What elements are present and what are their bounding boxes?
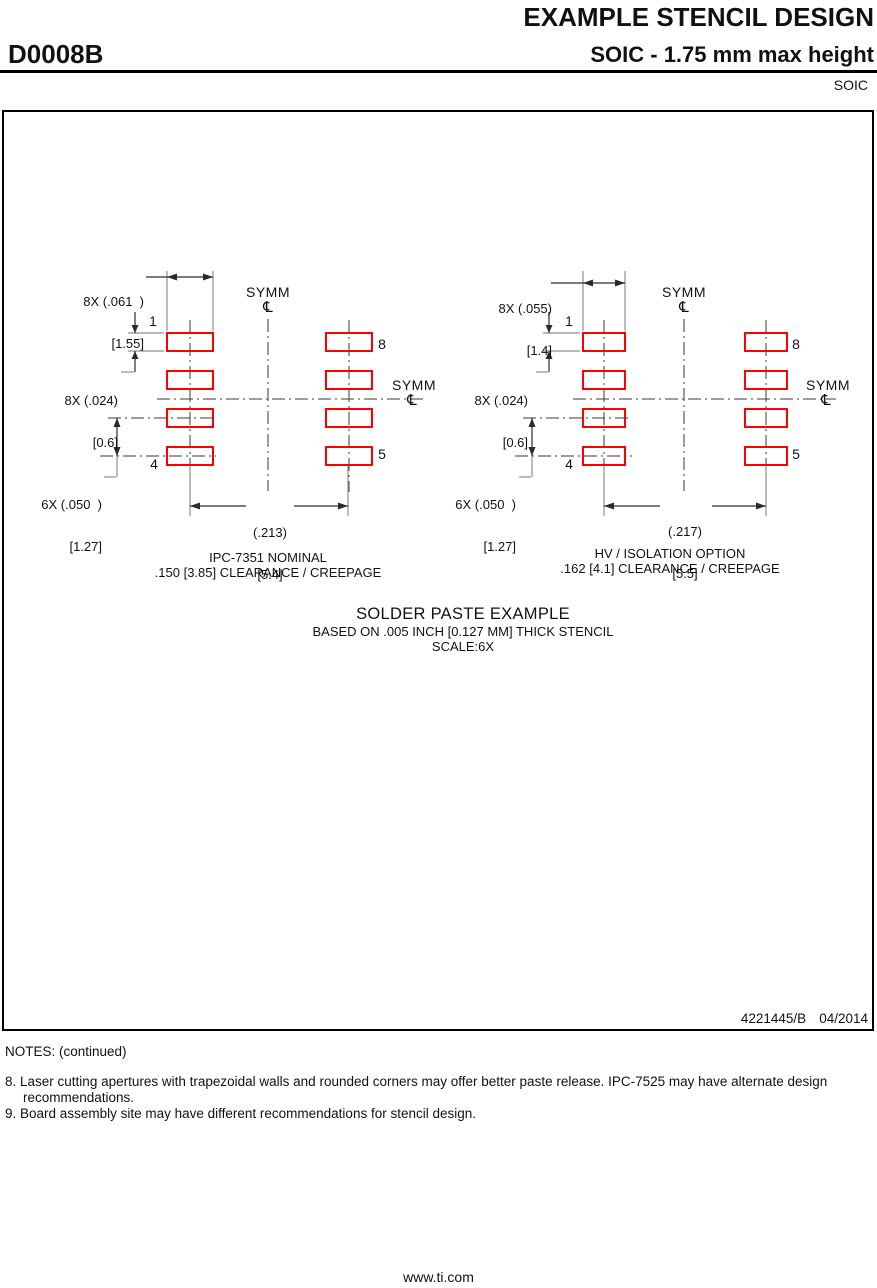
note-number: 9.: [5, 1106, 16, 1121]
note-item-9: 9. Board assembly site may have differen…: [5, 1106, 855, 1122]
notes-list: 8. Laser cutting apertures with trapezoi…: [5, 1074, 855, 1123]
left-diagram-caption: IPC-7351 NOMINAL .150 [3.85] CLEARANCE /…: [117, 550, 419, 580]
ti-website-link[interactable]: www.ti.com: [403, 1269, 474, 1285]
revision-date: 04/2014: [819, 1011, 868, 1026]
pin-label-4: 4: [146, 456, 162, 472]
right-diagram-caption: HV / ISOLATION OPTION .162 [4.1] CLEARAN…: [517, 546, 823, 576]
dim-inch: 8X (.024): [56, 394, 118, 408]
title-block: 4221445/B 04/2014: [741, 1011, 868, 1026]
pin-label-4: 4: [561, 456, 577, 472]
footer: www.ti.com: [0, 1269, 877, 1285]
dim-inch: 8X (.061 ): [52, 295, 144, 309]
dim-pad-height-left: 8X (.024) [0.6]: [56, 366, 118, 478]
pin-label-8: 8: [374, 336, 390, 352]
dim-pitch-left: 6X (.050 ) [1.27]: [27, 470, 102, 582]
caption-line1: HV / ISOLATION OPTION: [517, 546, 823, 561]
pin-label-1: 1: [145, 313, 161, 329]
note-number: 8.: [5, 1074, 16, 1089]
dim-mm: [0.6]: [466, 436, 528, 450]
notes-heading: NOTES: (continued): [5, 1044, 127, 1059]
centerline-icon: ℄: [402, 391, 422, 409]
pin-label-5: 5: [374, 446, 390, 462]
caption-line2: .150 [3.85] CLEARANCE / CREEPAGE: [117, 565, 419, 580]
solder-paste-basis: BASED ON .005 INCH [0.127 MM] THICK STEN…: [238, 624, 688, 639]
dim-mm: [1.4]: [466, 344, 552, 358]
dim-mm: [1.55]: [52, 337, 144, 351]
solder-paste-title: SOLDER PASTE EXAMPLE: [238, 604, 688, 624]
dim-pitch-right: 6X (.050 ) [1.27]: [441, 470, 516, 582]
dim-mm: [1.27]: [27, 540, 102, 554]
dim-pad-width-left: 8X (.061 ) [1.55]: [52, 267, 144, 379]
centerline-icon: ℄: [674, 298, 694, 316]
dimension-arrowheads: [114, 274, 349, 510]
dim-pad-height-right: 8X (.024) [0.6]: [466, 366, 528, 478]
solder-paste-scale: SCALE:6X: [238, 639, 688, 654]
pin-label-1: 1: [561, 313, 577, 329]
extension-lines: [519, 271, 766, 516]
dim-mm: [0.6]: [56, 436, 118, 450]
dim-inch: 6X (.050 ): [27, 498, 102, 512]
pin-label-8: 8: [788, 336, 804, 352]
dim-inch: 6X (.050 ): [441, 498, 516, 512]
centerline-icon: ℄: [816, 391, 836, 409]
dim-inch: 8X (.055): [466, 302, 552, 316]
note-text: Laser cutting apertures with trapezoidal…: [20, 1074, 827, 1105]
note-text: Board assembly site may have different r…: [20, 1106, 476, 1121]
centerline-icon: ℄: [258, 298, 278, 316]
pin-label-5: 5: [788, 446, 804, 462]
solder-paste-note: SOLDER PASTE EXAMPLE BASED ON .005 INCH …: [238, 604, 688, 654]
dim-inch: (.217): [643, 525, 727, 539]
caption-line2: .162 [4.1] CLEARANCE / CREEPAGE: [517, 561, 823, 576]
datasheet-page: EXAMPLE STENCIL DESIGN D0008B SOIC - 1.7…: [0, 0, 877, 1288]
dim-inch: 8X (.024): [466, 394, 528, 408]
dim-mm: [1.27]: [441, 540, 516, 554]
note-item-8: 8. Laser cutting apertures with trapezoi…: [5, 1074, 855, 1106]
drawing-number: 4221445/B: [741, 1011, 806, 1026]
caption-line1: IPC-7351 NOMINAL: [117, 550, 419, 565]
dim-inch: (.213): [228, 526, 312, 540]
